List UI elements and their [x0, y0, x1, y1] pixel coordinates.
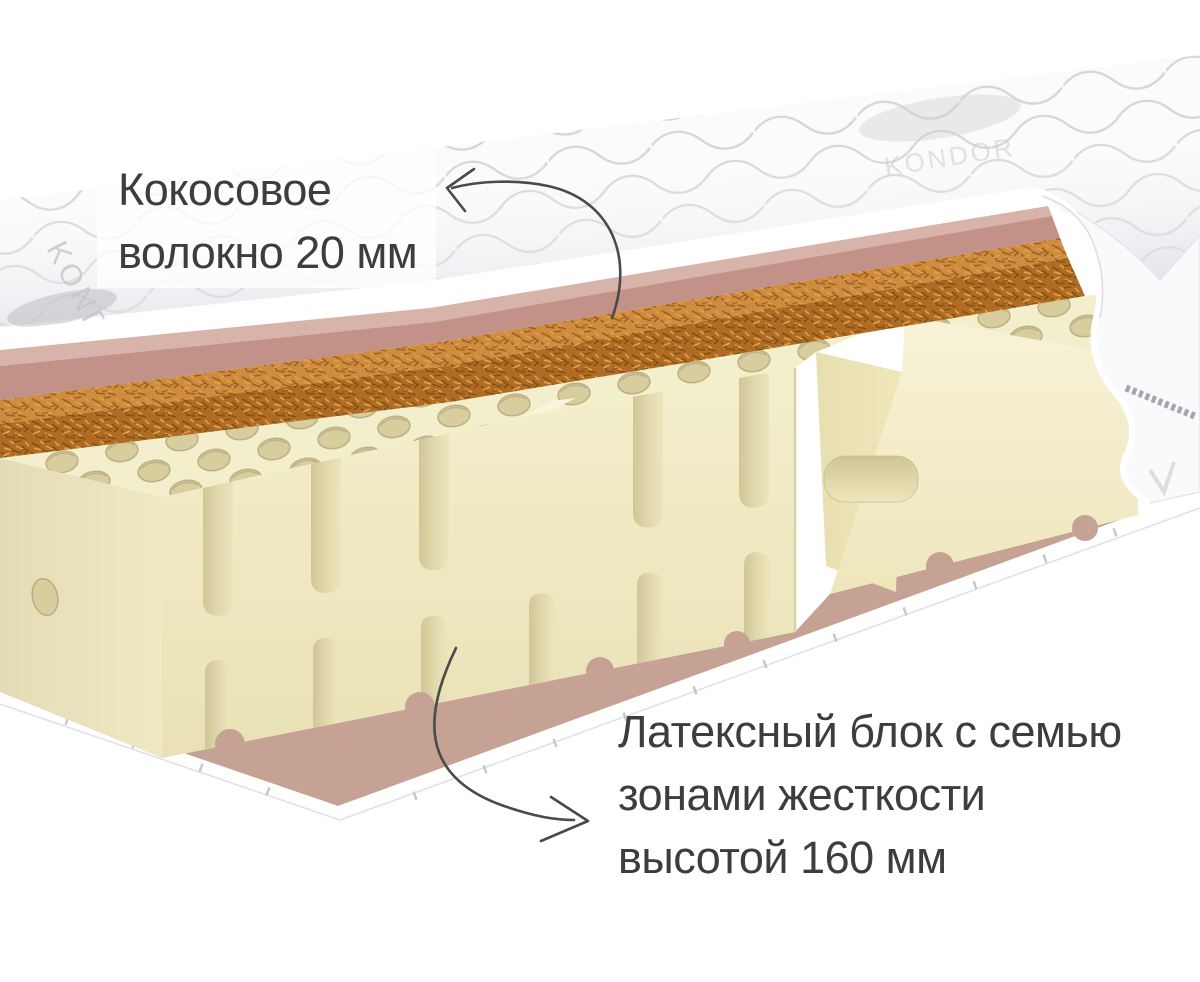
coconut-label-line1: Кокосовое: [118, 158, 436, 221]
latex-label-line3: высотой 160 мм: [618, 826, 1122, 889]
cut-face-horizontal-slot: [824, 456, 918, 502]
latex-label-line1: Латексный блок с семью: [618, 700, 1122, 763]
latex-label: Латексный блок с семью зонами жесткости …: [618, 700, 1122, 889]
latex-label-line2: зонами жесткости: [618, 763, 1122, 826]
coconut-label: Кокосовое волокно 20 мм: [97, 150, 436, 288]
latex-cut-face: [830, 316, 1138, 594]
coconut-label-line2: волокно 20 мм: [118, 221, 436, 284]
product-illustration: KONDOR KONDOR Кокосовое волокно 20 мм Ла…: [0, 0, 1200, 982]
